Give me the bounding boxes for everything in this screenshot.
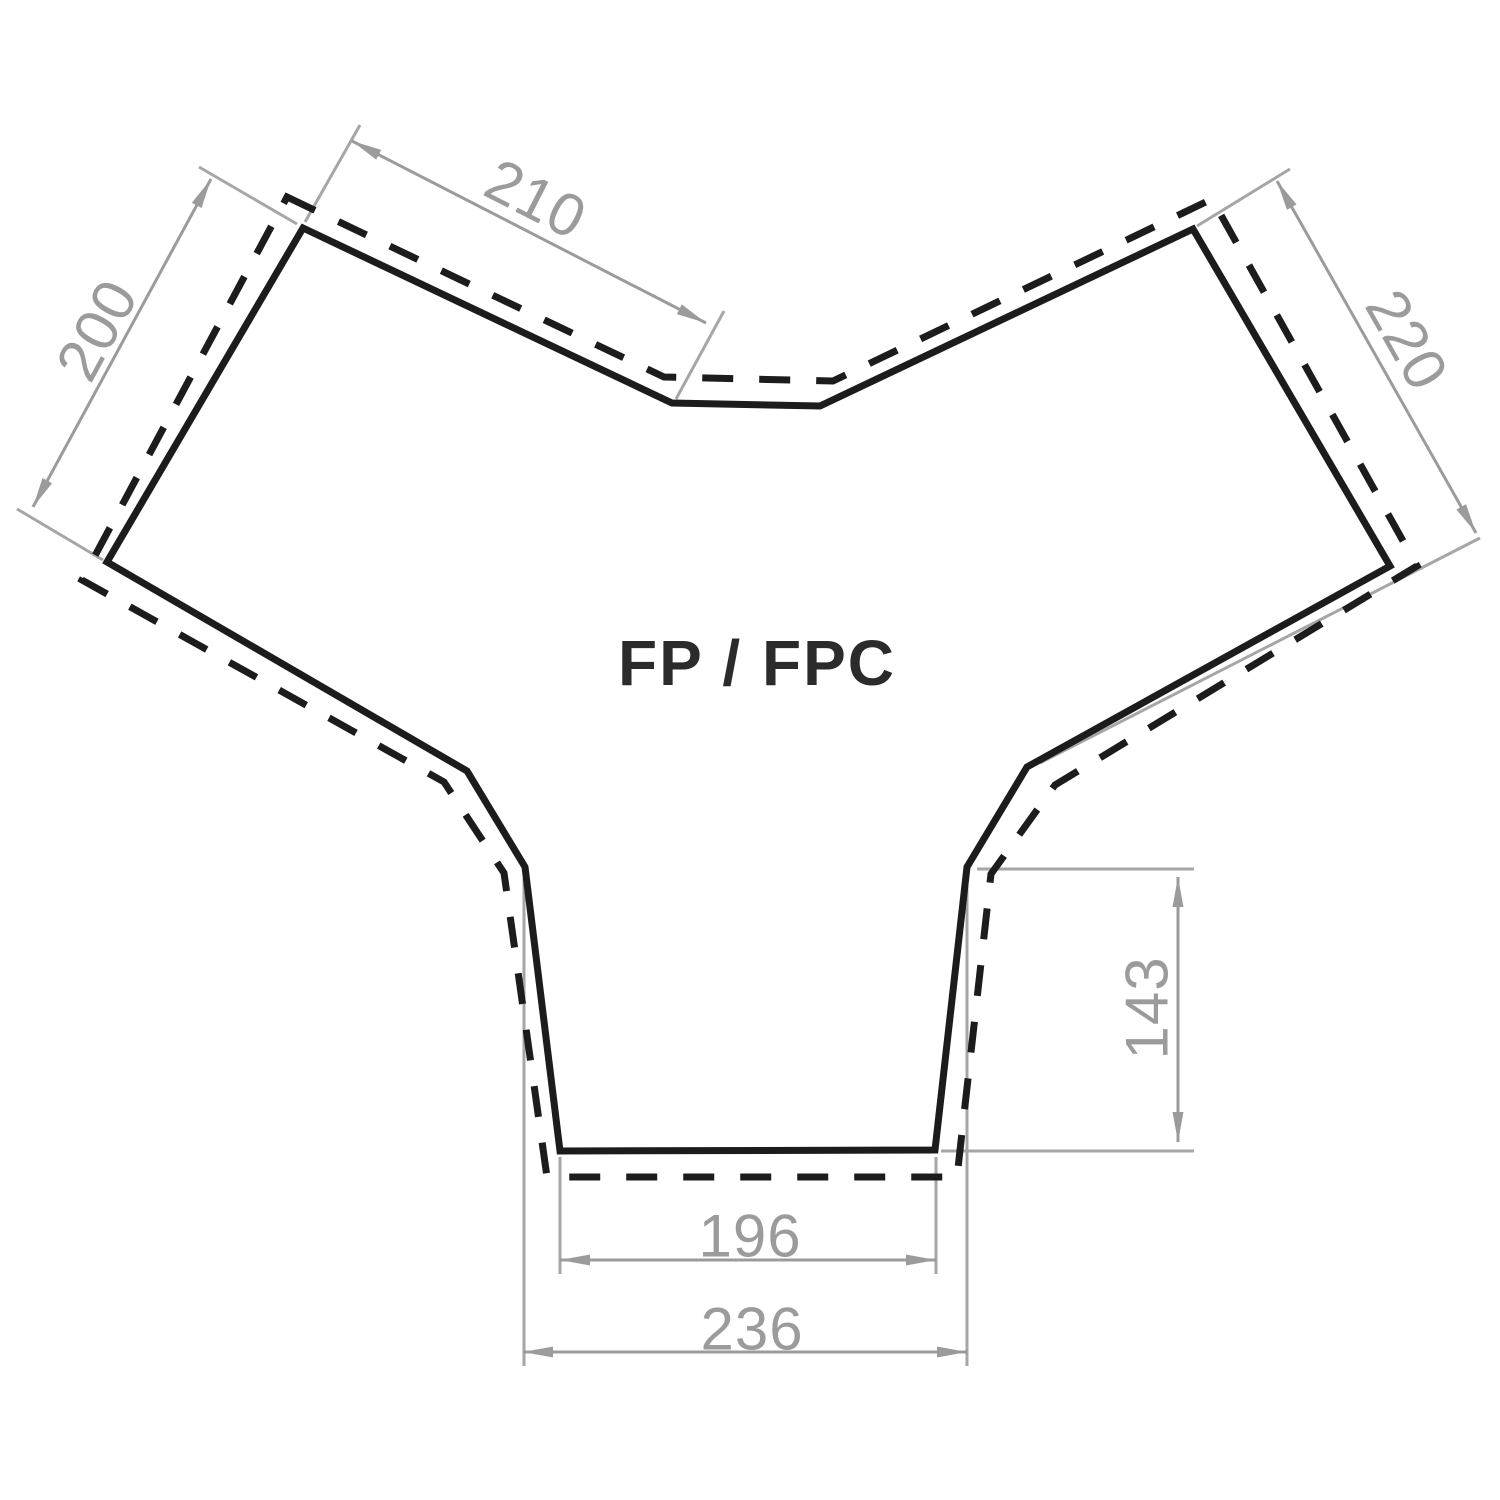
dim-label-200: 200 <box>43 269 151 392</box>
dim-label-220: 220 <box>1352 279 1461 402</box>
dim-label-143: 143 <box>1114 956 1181 1059</box>
footprint-diagram: 210 200 220 143 196 236 FP / FPC <box>0 0 1500 1500</box>
ext-200-top <box>199 167 297 224</box>
ext-210-right <box>676 311 724 399</box>
dim-label-236: 236 <box>700 1296 803 1363</box>
model-title: FP / FPC <box>618 627 896 699</box>
drawing-canvas: 210 200 220 143 196 236 FP / FPC <box>0 0 1500 1500</box>
dim-label-210: 210 <box>475 146 597 253</box>
dim-label-196: 196 <box>698 1203 801 1270</box>
ext-220-top <box>1197 169 1290 226</box>
ext-200-bottom <box>17 509 103 560</box>
